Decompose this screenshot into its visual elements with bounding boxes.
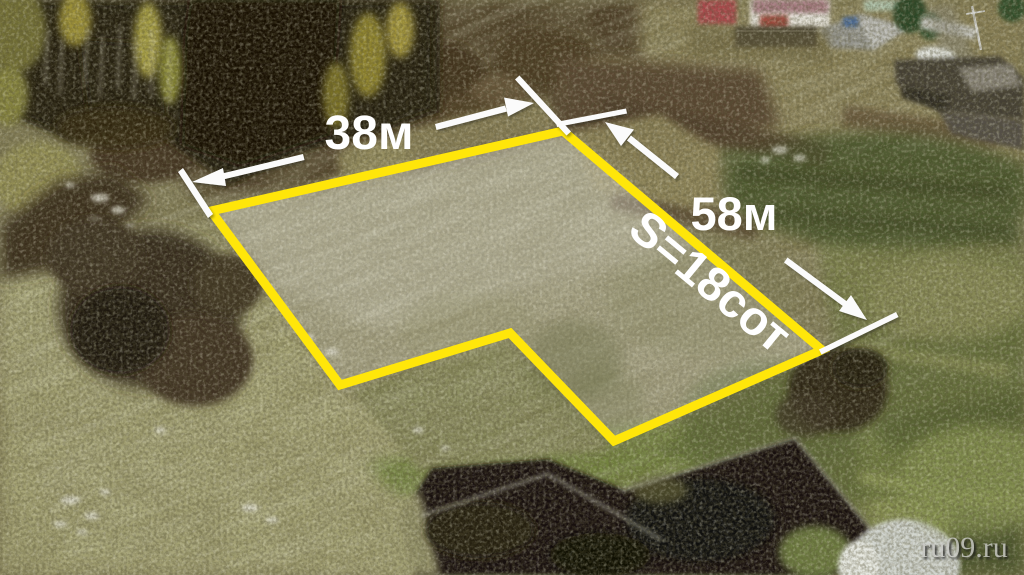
svg-text:58м: 58м (690, 187, 777, 240)
svg-text:38м: 38м (325, 107, 414, 160)
svg-text:ru09.ru: ru09.ru (920, 531, 1007, 564)
